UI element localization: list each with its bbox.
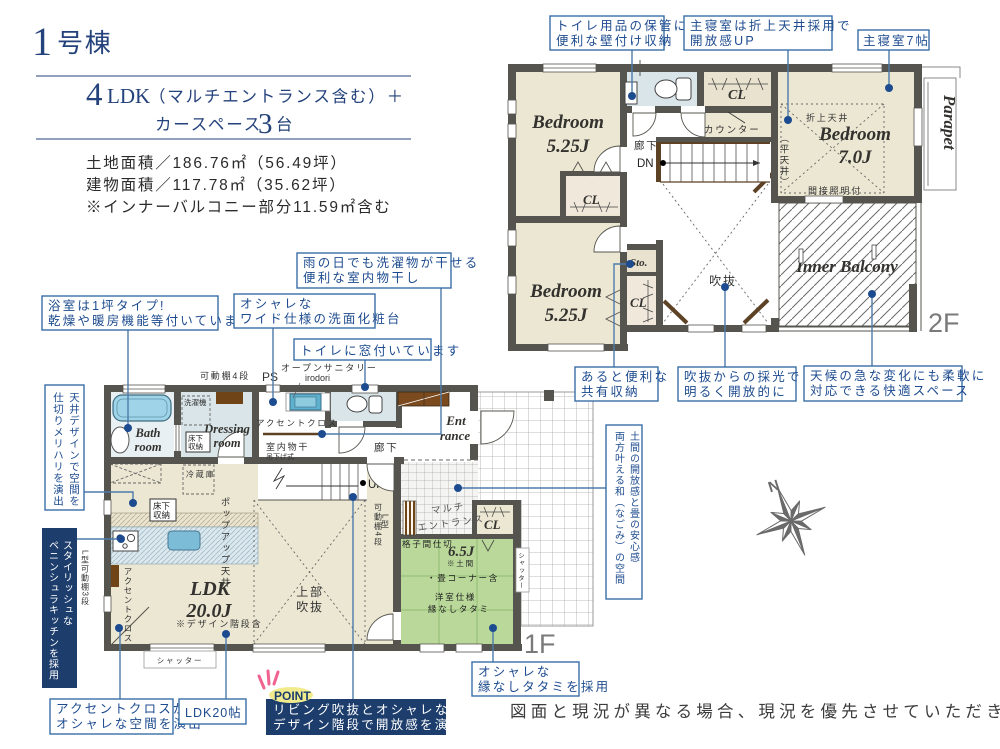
svg-text:Ent: Ent — [445, 413, 466, 428]
svg-text:アクセントクロス: アクセントクロス — [256, 418, 338, 428]
svg-text:雨の日でも洗濯物が干せる: 雨の日でも洗濯物が干せる — [303, 255, 479, 270]
svg-text:※土間: ※土間 — [447, 558, 475, 568]
svg-text:LDK20帖: LDK20帖 — [185, 705, 242, 720]
svg-text:主寝室は折上天井採用で: 主寝室は折上天井採用で — [690, 18, 852, 33]
svg-text:オープンサニタリー: オープンサニタリー — [281, 363, 378, 373]
svg-text:乾燥や暖房機能等付いています: 乾燥や暖房機能等付いています — [48, 313, 253, 328]
svg-text:PS: PS — [262, 370, 278, 384]
svg-text:便利な室内物干し: 便利な室内物干し — [303, 270, 421, 285]
svg-text:CL: CL — [484, 517, 501, 532]
svg-text:両方叶える和（なごみ）の空間: 両方叶える和（なごみ）の空間 — [613, 431, 625, 585]
svg-text:縁なしタタミを採用: 縁なしタタミを採用 — [478, 679, 610, 694]
svg-text:アクセントクロス: アクセントクロス — [123, 567, 133, 643]
svg-text:5.25J: 5.25J — [545, 305, 588, 326]
svg-text:DN: DN — [637, 158, 654, 170]
svg-text:5.25J: 5.25J — [547, 136, 590, 157]
svg-text:※デザイン階段含: ※デザイン階段含 — [176, 618, 262, 629]
svg-text:オシャレな: オシャレな — [240, 297, 314, 311]
svg-text:天候の急な変化にも柔軟に: 天候の急な変化にも柔軟に — [810, 368, 986, 383]
svg-text:rance: rance — [440, 428, 471, 443]
svg-text:・畳コーナー含: ・畳コーナー含 — [427, 573, 499, 583]
svg-text:LDK: LDK — [107, 84, 150, 108]
svg-text:room: room — [134, 440, 161, 454]
svg-text:廊下: 廊下 — [634, 139, 659, 152]
svg-text:吊下げ式: 吊下げ式 — [266, 452, 294, 461]
svg-text:CL: CL — [728, 88, 746, 103]
svg-text:主寝室7帖: 主寝室7帖 — [863, 33, 930, 48]
svg-text:収納: 収納 — [188, 441, 203, 451]
svg-text:明るく開放的に: 明るく開放的に — [684, 384, 787, 399]
svg-text:irodori: irodori — [305, 373, 330, 383]
svg-text:室内物干: 室内物干 — [266, 441, 309, 452]
svg-text:L型: L型 — [381, 514, 390, 529]
svg-text:洗濯機: 洗濯機 — [184, 397, 207, 407]
svg-text:浴室は1坪タイプ!: 浴室は1坪タイプ! — [48, 298, 166, 313]
svg-text:折上天井: 折上天井 — [806, 112, 849, 123]
svg-text:1F: 1F — [524, 629, 556, 659]
svg-text:天井デザインで空間を: 天井デザインで空間を — [68, 392, 80, 507]
svg-text:（平天井）: （平天井） — [778, 133, 790, 188]
svg-text:Bedroom: Bedroom — [529, 281, 602, 302]
svg-text:土地面積／186.76㎡（56.49坪）: 土地面積／186.76㎡（56.49坪） — [86, 154, 348, 172]
svg-text:建物面積／117.78㎡（35.62坪）: 建物面積／117.78㎡（35.62坪） — [86, 176, 347, 194]
svg-text:2F: 2F — [928, 308, 960, 338]
svg-text:廊下: 廊下 — [374, 441, 399, 454]
svg-text:ペニンシュラキッチンを採用: ペニンシュラキッチンを採用 — [47, 540, 59, 680]
svg-text:吹抜: 吹抜 — [296, 600, 324, 614]
svg-text:対応できる快適スペース: 対応できる快適スペース — [810, 383, 970, 398]
svg-text:Parapet: Parapet — [940, 94, 959, 151]
svg-text:土間の開放感と畳の安心感: 土間の開放感と畳の安心感 — [628, 430, 640, 563]
svg-text:L型可動棚3段: L型可動棚3段 — [81, 550, 90, 606]
svg-text:上部: 上部 — [296, 584, 324, 599]
svg-text:間接照明付: 間接照明付 — [808, 185, 862, 196]
svg-text:ワイド仕様の洗面化粧台: ワイド仕様の洗面化粧台 — [240, 311, 402, 326]
svg-text:リビング吹抜とオシャレな: リビング吹抜とオシャレな — [273, 702, 449, 717]
svg-text:7.0J: 7.0J — [838, 147, 872, 168]
svg-text:Bedroom: Bedroom — [531, 112, 604, 133]
svg-text:冷蔵庫: 冷蔵庫 — [186, 469, 215, 479]
svg-text:3: 3 — [258, 108, 273, 140]
svg-text:トイレ用品の保管に: トイレ用品の保管に — [556, 18, 688, 33]
svg-text:図面と現況が異なる場合、現況を優先させていただきます。: 図面と現況が異なる場合、現況を優先させていただきます。 — [510, 702, 1000, 721]
svg-text:POINT: POINT — [274, 689, 311, 703]
svg-text:4: 4 — [86, 77, 103, 113]
svg-text:縁なしタタミ: 縁なしタタミ — [428, 604, 490, 614]
svg-text:ポップアップ天井: ポップアップ天井 — [219, 497, 231, 589]
svg-text:1: 1 — [32, 19, 52, 64]
svg-text:台: 台 — [276, 115, 294, 134]
svg-text:カウンター: カウンター — [704, 125, 761, 136]
svg-text:6.5J: 6.5J — [448, 544, 475, 560]
svg-text:room: room — [213, 436, 240, 450]
svg-text:トイレに窓付いています: トイレに窓付いています — [300, 343, 461, 358]
svg-text:デザイン階段で開放感を演出: デザイン階段で開放感を演出 — [273, 717, 464, 732]
svg-text:Bath: Bath — [134, 426, 160, 440]
svg-text:収納: 収納 — [153, 510, 170, 520]
svg-text:洋室仕様: 洋室仕様 — [435, 592, 476, 602]
svg-text:あると便利な: あると便利な — [581, 370, 669, 384]
svg-text:Bedroom: Bedroom — [818, 124, 891, 145]
svg-text:共有収納: 共有収納 — [581, 385, 640, 399]
svg-text:開放感UP: 開放感UP — [690, 33, 756, 48]
svg-text:号棟: 号棟 — [57, 28, 113, 58]
svg-text:吹抜からの採光で: 吹抜からの採光で — [684, 369, 802, 384]
svg-text:可動棚4段: 可動棚4段 — [200, 370, 250, 381]
svg-text:オシャレな: オシャレな — [478, 665, 552, 679]
svg-text:スタイリッシュな: スタイリッシュな — [61, 540, 73, 626]
svg-text:※インナーバルコニー部分11.59㎡含む: ※インナーバルコニー部分11.59㎡含む — [86, 198, 392, 216]
svg-text:格子間仕切: 格子間仕切 — [402, 539, 454, 549]
svg-text:Inner Balcony: Inner Balcony — [795, 257, 898, 276]
svg-text:カースペース: カースペース — [155, 116, 262, 134]
svg-text:シャッター: シャッター — [157, 656, 204, 665]
svg-text:LDK: LDK — [189, 578, 232, 600]
svg-text:仕切りメリハリを演出: 仕切りメリハリを演出 — [52, 391, 64, 507]
svg-text:CL: CL — [583, 192, 600, 207]
svg-text:便利な壁付け収納: 便利な壁付け収納 — [556, 33, 674, 48]
svg-text:（マルチエントランス含む）＋: （マルチエントランス含む）＋ — [149, 87, 405, 106]
svg-text:アクセントクロスが: アクセントクロスが — [56, 701, 188, 716]
